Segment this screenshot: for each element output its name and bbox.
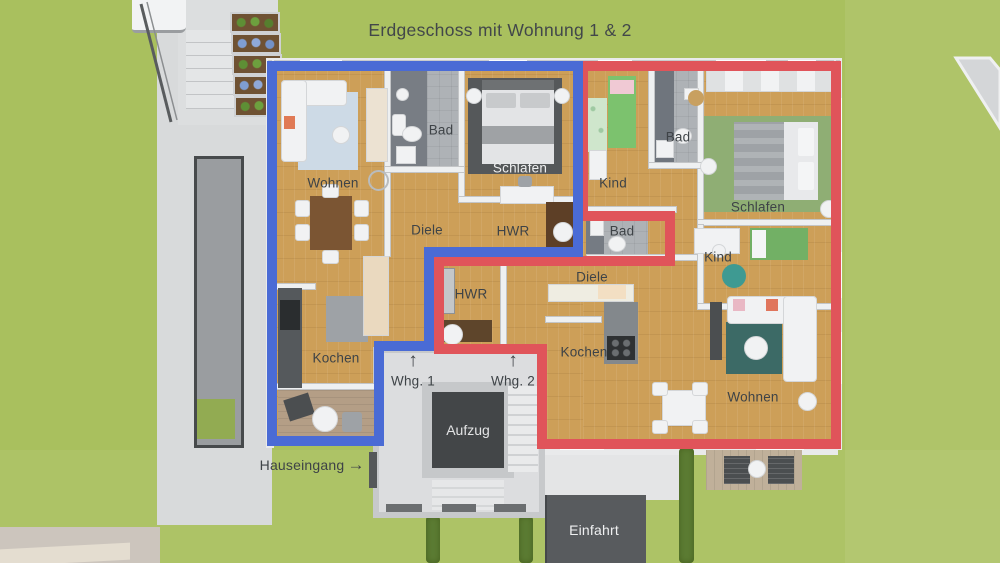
bed-apt2-duvet [734, 122, 784, 200]
window [268, 206, 274, 246]
window [836, 98, 842, 150]
cushion [284, 116, 295, 129]
page-title: Erdgeschoss mit Wohnung 1 & 2 [0, 20, 1000, 41]
room-label-wohnen-2: Wohnen [727, 390, 778, 405]
terrace-table-1 [312, 406, 338, 432]
pouf [820, 200, 838, 218]
kid2-rug [722, 264, 746, 288]
hwr2-appliances [437, 268, 455, 314]
interior-wall [586, 254, 703, 261]
pouf [700, 158, 717, 175]
kid1-rug [587, 98, 607, 152]
interior-wall [648, 66, 655, 167]
room-label-schlafen-2: Schlafen [731, 200, 785, 215]
laundry-basket-2 [442, 324, 463, 345]
chair [295, 200, 310, 217]
window [598, 60, 632, 66]
shower-head [396, 88, 409, 101]
floor-plan-scene: Erdgeschoss mit Wohnung 1 & 2 Einfahrt [0, 0, 1000, 563]
coffee-table-apt2 [744, 336, 768, 360]
terrace-chair-2 [342, 412, 362, 432]
interior-wall [384, 166, 465, 173]
hedge [519, 516, 533, 563]
washer-apt1 [396, 146, 416, 164]
room-label-hwr-2: HWR [455, 287, 488, 302]
stairs [508, 386, 538, 472]
bed-apt1 [482, 80, 554, 90]
lounger [768, 456, 794, 484]
chair [354, 200, 369, 217]
floor-lamp [798, 392, 817, 411]
window [300, 60, 342, 66]
dining-table-apt1 [310, 196, 352, 250]
window [836, 332, 842, 384]
chair [322, 250, 339, 264]
whg2-label: Whg. 2 [491, 374, 535, 389]
room-label-bad-2a: Bad [666, 130, 691, 145]
cushion [733, 299, 745, 311]
door-slot [494, 504, 526, 512]
chair [692, 420, 708, 434]
hedge [679, 448, 694, 563]
nightstand [466, 88, 482, 104]
interior-wall [545, 316, 602, 323]
window [268, 308, 274, 350]
chair [692, 382, 708, 396]
window [836, 252, 842, 298]
room-label-kochen-2: Kochen [561, 345, 608, 360]
door-slot [386, 504, 422, 512]
kid2-pillow [752, 230, 766, 258]
up-arrow-icon-whg1: ↑ [403, 350, 423, 372]
hedge [426, 516, 440, 563]
hob [607, 336, 635, 360]
tv-partition [710, 302, 722, 360]
fridge-apt1 [280, 300, 300, 330]
pillow [520, 93, 550, 108]
ottoman [332, 126, 350, 144]
blanket [482, 126, 554, 144]
room-label-diele-1: Diele [411, 223, 443, 238]
interior-wall [500, 258, 507, 354]
whg1-label: Whg. 1 [391, 374, 435, 389]
window [560, 444, 604, 450]
chair [652, 382, 668, 396]
room-label-kind-2a: Kind [599, 176, 627, 191]
room-label-wohnen-1: Wohnen [307, 176, 358, 191]
elevator-label: Aufzug [446, 422, 490, 438]
window [788, 60, 816, 66]
kid1-pillow [610, 80, 634, 94]
chair [354, 224, 369, 241]
sideboard-apt1 [366, 88, 388, 162]
wardrobe-apt2 [706, 68, 834, 92]
laundry-basket [553, 222, 573, 242]
cushion [766, 299, 778, 311]
house-door [369, 452, 377, 488]
room-label-schlafen-1: Schlafen [493, 161, 547, 176]
interior-wall [458, 66, 465, 200]
chair [652, 420, 668, 434]
pillow [798, 128, 814, 156]
window [716, 60, 766, 66]
interior-wall [697, 219, 839, 226]
elevator-car: Aufzug [432, 392, 504, 468]
up-arrow-icon-whg2: ↑ [503, 350, 523, 372]
terrace-table [748, 460, 766, 478]
ceiling-fan-icon [368, 170, 389, 191]
pillow [798, 162, 814, 190]
driveway-label: Einfahrt [569, 522, 619, 538]
kitchen-column-apt1 [363, 256, 389, 336]
room-label-kind-2b: Kind [704, 250, 732, 265]
sofa-apt2 [783, 296, 817, 382]
sink-bath2-apt2 [590, 218, 604, 236]
toilet-apt1 [402, 126, 422, 142]
chair [295, 224, 310, 241]
room-label-bad-2b: Bad [610, 224, 635, 239]
window [756, 444, 804, 450]
lounger [724, 456, 750, 484]
window [268, 96, 274, 142]
basket [688, 90, 704, 106]
kitchen-island-apt1 [326, 296, 368, 342]
pillow [486, 93, 516, 108]
house-entrance-label: Hauseingang [260, 457, 345, 473]
room-label-diele-2: Diele [576, 270, 608, 285]
room-label-hwr-1: HWR [497, 224, 530, 239]
entrance-door-whg2 [538, 358, 545, 388]
nightstand [554, 88, 570, 104]
right-arrow-icon: → [344, 455, 368, 475]
light-well-green [197, 399, 235, 439]
room-label-kochen-1: Kochen [313, 351, 360, 366]
entrance-door-whg1 [441, 346, 475, 353]
interior-wall [583, 206, 677, 213]
room-label-bad-1: Bad [429, 123, 454, 138]
window [489, 60, 527, 66]
desk-chair [518, 176, 532, 187]
door-slot [442, 504, 476, 512]
interior-wall [648, 162, 704, 169]
kitchen-counter-box [598, 285, 626, 299]
